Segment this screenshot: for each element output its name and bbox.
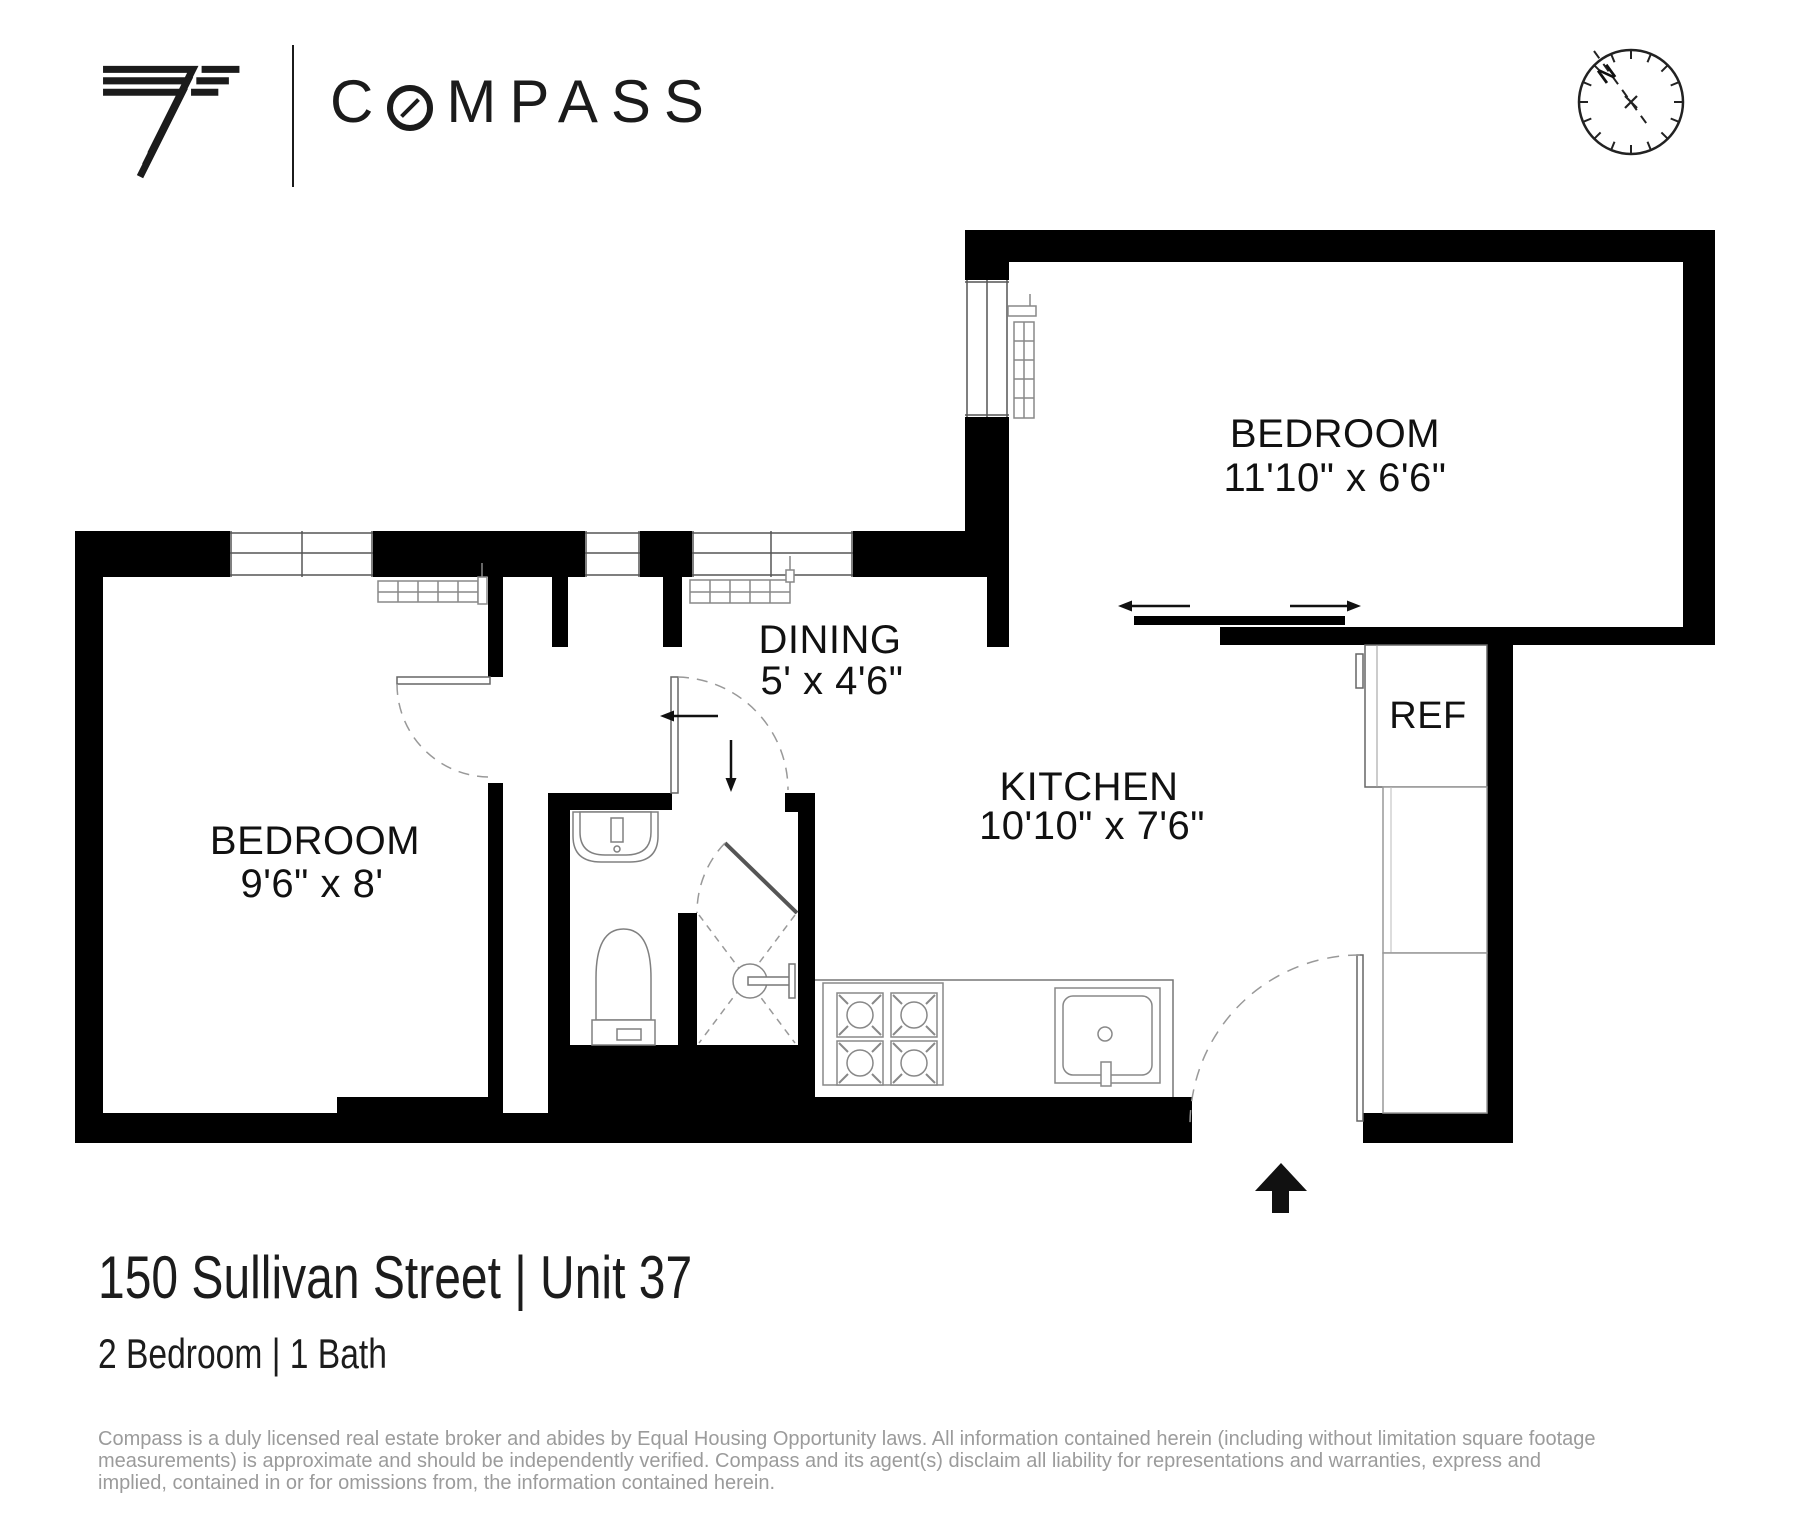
door-direction-left-arrow-icon <box>660 711 718 722</box>
sliding-door-panel <box>1134 616 1345 625</box>
slide-right-arrow-icon <box>1290 601 1361 612</box>
disclaimer-line: implied, contained in or for omissions f… <box>98 1472 1596 1494</box>
disclaimer: Compass is a duly licensed real estate b… <box>98 1428 1596 1494</box>
window <box>585 531 640 577</box>
radiator <box>1008 294 1036 418</box>
bedroom-1-dimensions: 9'6" x 8' <box>241 864 384 904</box>
slide-left-arrow-icon <box>1118 601 1190 612</box>
cabinets <box>1383 787 1487 1113</box>
bedroom-2-dimensions: 11'10" x 6'6" <box>1224 458 1447 498</box>
bathroom-sink <box>573 812 658 862</box>
bedroom-1-name: BEDROOM <box>210 821 420 861</box>
dining-dimensions: 5' x 4'6" <box>761 661 904 701</box>
bedroom-2-name: BEDROOM <box>1230 414 1440 454</box>
bedroom-door <box>397 677 490 777</box>
disclaimer-line: Compass is a duly licensed real estate b… <box>98 1428 1596 1450</box>
kitchen-fixtures <box>815 645 1487 1113</box>
kitchen-sink <box>1055 988 1160 1086</box>
shower-door <box>697 843 797 913</box>
shower <box>699 915 795 1043</box>
entry-arrow-icon <box>1255 1163 1307 1213</box>
window <box>230 531 373 577</box>
stove <box>823 983 943 1085</box>
entry-door <box>1190 955 1363 1125</box>
floorplan-page: C MPASS N <box>0 0 1800 1527</box>
dining-name: DINING <box>759 620 902 660</box>
kitchen-name: KITCHEN <box>999 767 1178 807</box>
unit-info: 2 Bedroom | 1 Bath <box>98 1330 387 1378</box>
kitchen-dimensions: 10'10" x 7'6" <box>979 806 1205 846</box>
disclaimer-line: measurements) is approximate and should … <box>98 1450 1596 1472</box>
window <box>965 280 1009 417</box>
window <box>692 531 853 577</box>
address-title: 150 Sullivan Street | Unit 37 <box>98 1243 692 1312</box>
refrigerator-label: REF <box>1389 697 1467 735</box>
door-direction-down-arrow-icon <box>726 740 737 792</box>
toilet <box>592 929 655 1045</box>
